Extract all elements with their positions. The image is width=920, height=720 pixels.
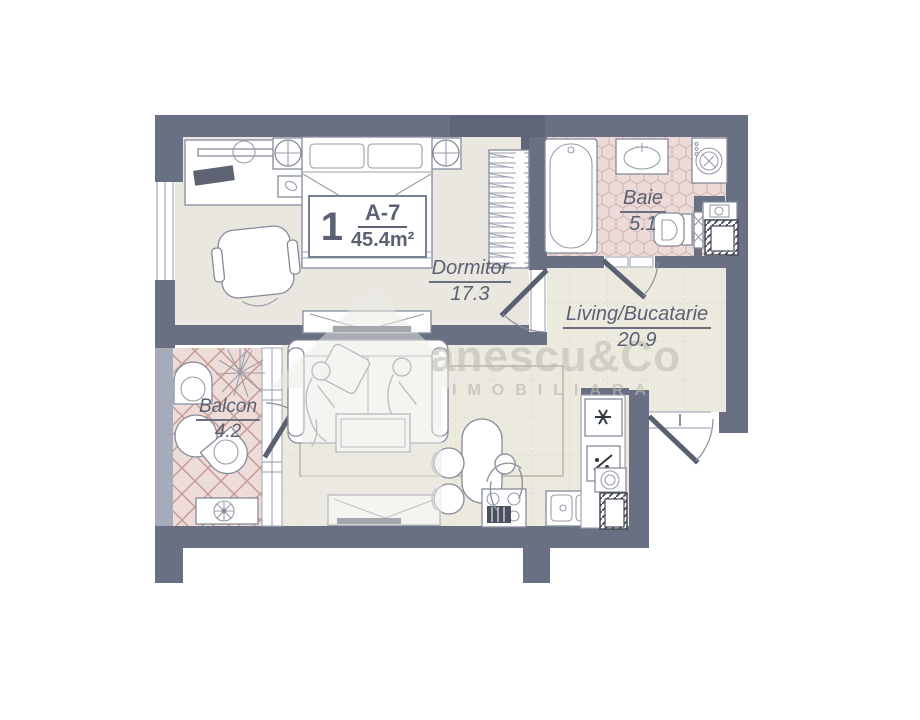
unit-code: A-7	[358, 201, 407, 228]
balcony-chair	[174, 362, 212, 404]
bathroom-vanity	[703, 202, 737, 220]
living-floor	[649, 345, 726, 412]
nightstand-left	[273, 138, 304, 169]
towel-radiator	[694, 212, 703, 248]
washing-machine	[692, 138, 727, 183]
unit-label: 1 A-7 45.4m²	[308, 195, 427, 258]
entrance-door	[649, 412, 713, 461]
floor-plan: anescu&Co IMOBILIARA 1 A-7 45.4m² Dormit…	[0, 0, 920, 720]
toilet	[654, 213, 692, 246]
unit-number: 1	[321, 207, 343, 247]
bedroom-window	[155, 182, 175, 280]
nightstand-right	[430, 138, 461, 169]
bathtub	[545, 139, 597, 253]
stove	[482, 489, 526, 527]
ac-unit	[196, 498, 258, 524]
living-floor	[547, 268, 726, 345]
kitchen-shaft	[600, 493, 627, 529]
bathroom-sink	[616, 139, 668, 174]
unit-total-area: 45.4m²	[351, 228, 414, 252]
bathroom-shaft	[705, 220, 738, 255]
wardrobe	[489, 150, 529, 268]
floor-plan-drawing	[0, 0, 920, 720]
